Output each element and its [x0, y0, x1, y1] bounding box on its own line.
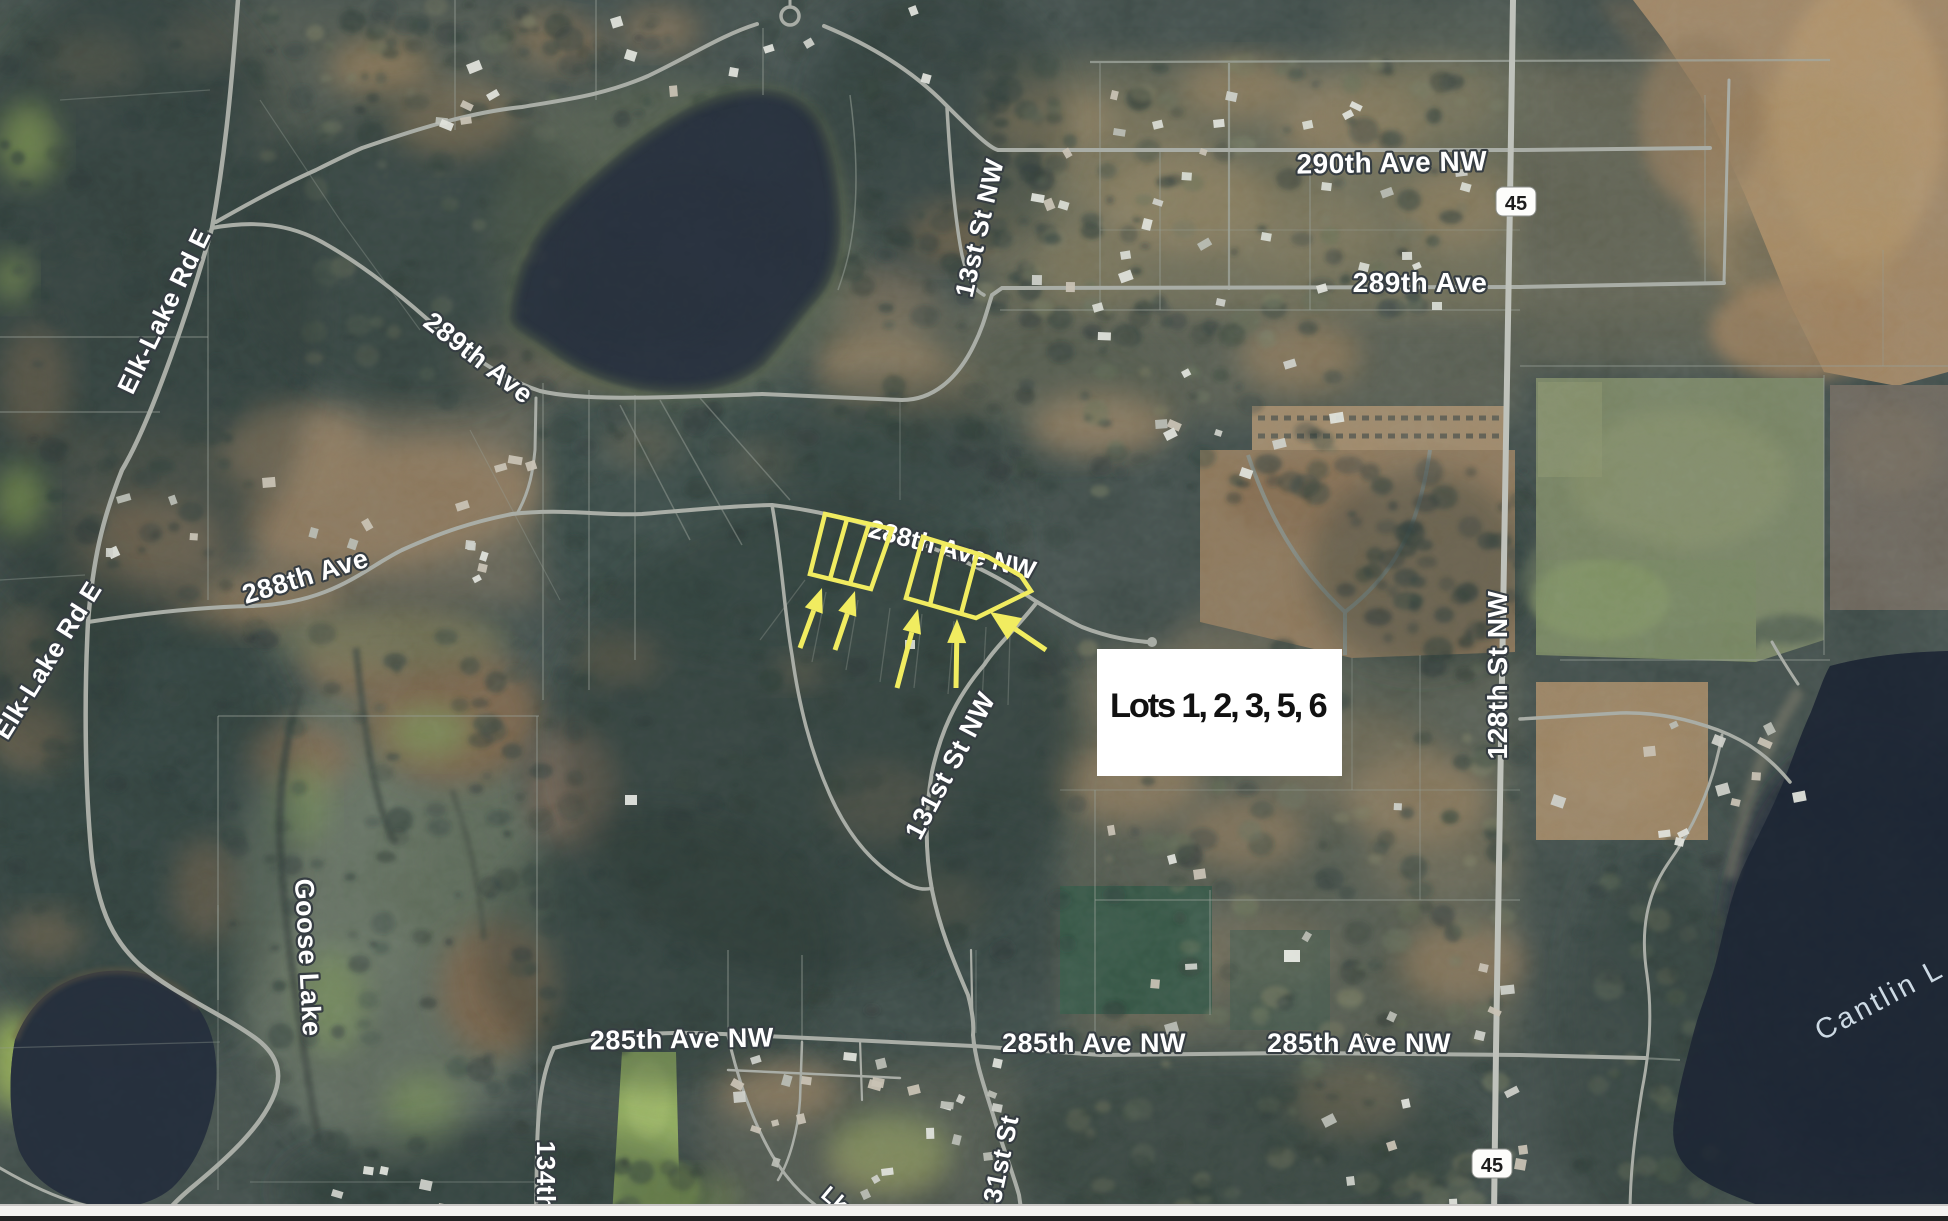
svg-text:285th Ave NW: 285th Ave NW: [1267, 1028, 1451, 1058]
svg-text:285th Ave NW: 285th Ave NW: [1002, 1028, 1186, 1058]
svg-text:289th Ave: 289th Ave: [1353, 267, 1488, 298]
svg-text:Lots 1, 2, 3, 5, 6: Lots 1, 2, 3, 5, 6: [1110, 687, 1326, 725]
svg-text:134th: 134th: [531, 1141, 561, 1211]
svg-text:290th Ave NW: 290th Ave NW: [1296, 145, 1487, 179]
svg-text:45: 45: [1505, 193, 1527, 215]
svg-text:128th St NW: 128th St NW: [1482, 591, 1513, 760]
svg-text:285th Ave NW: 285th Ave NW: [590, 1022, 775, 1055]
svg-text:45: 45: [1481, 1155, 1503, 1177]
